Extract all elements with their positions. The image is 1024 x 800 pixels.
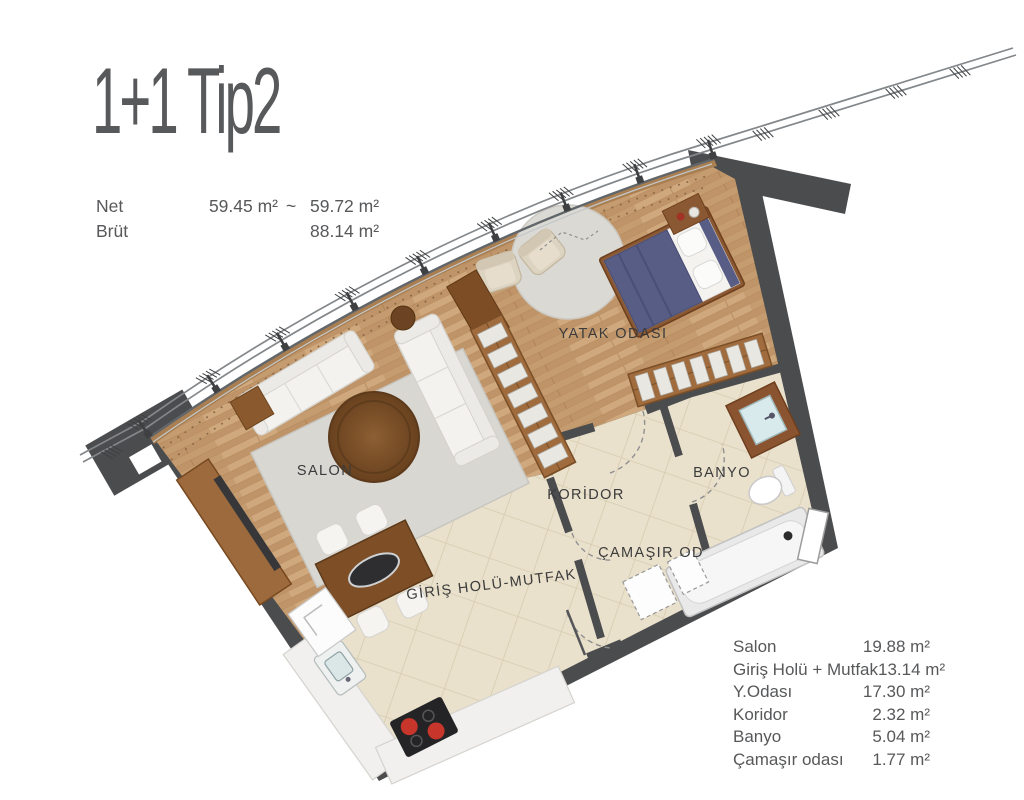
room-area: 2.32 m² <box>872 704 930 727</box>
room-name: Banyo <box>733 726 781 749</box>
room-name: Giriş Holü + Mutfak <box>733 659 878 682</box>
table-row: Koridor 2.32 m² <box>733 704 930 727</box>
room-area: 13.14 m² <box>878 659 945 682</box>
side-stool <box>391 306 415 330</box>
label-bedroom: YATAK ODASI <box>559 326 668 342</box>
room-area: 1.77 m² <box>872 749 930 772</box>
label-salon: SALON <box>297 463 353 479</box>
room-name: Çamaşır odası <box>733 749 844 772</box>
room-area: 5.04 m² <box>872 726 930 749</box>
label-bathroom: BANYO <box>693 465 751 481</box>
floor-plan-page: 1+1 Tip2 Net 59.45 m² ~ 59.72 m² Brüt 88… <box>0 0 1024 800</box>
label-corridor: KORİDOR <box>547 485 624 503</box>
room-name: Koridor <box>733 704 788 727</box>
room-name: Y.Odası <box>733 681 792 704</box>
table-row: Banyo 5.04 m² <box>733 726 930 749</box>
table-row: Çamaşır odası 1.77 m² <box>733 749 930 772</box>
room-area: 19.88 m² <box>863 636 930 659</box>
room-name: Salon <box>733 636 776 659</box>
table-row: Salon 19.88 m² <box>733 636 930 659</box>
table-row: Y.Odası 17.30 m² <box>733 681 930 704</box>
table-row: Giriş Holü + Mutfak 13.14 m² <box>733 659 930 682</box>
room-area: 17.30 m² <box>863 681 930 704</box>
area-table: Salon 19.88 m² Giriş Holü + Mutfak 13.14… <box>733 636 930 772</box>
label-laundry: ÇAMAŞIR OD <box>598 545 704 561</box>
